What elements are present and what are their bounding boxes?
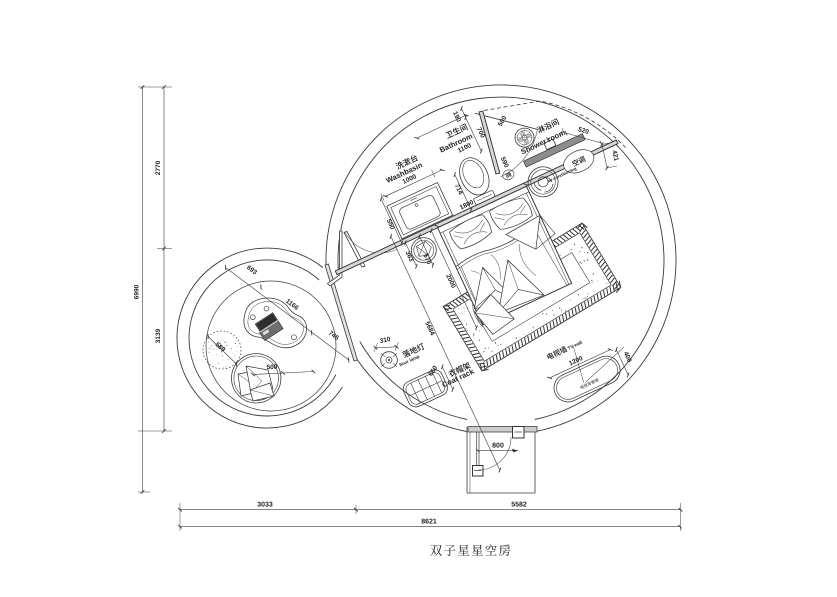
svg-text:2770: 2770 — [155, 160, 162, 175]
svg-text:6990: 6990 — [134, 284, 141, 299]
svg-text:5582: 5582 — [511, 502, 527, 509]
svg-text:8621: 8621 — [421, 519, 437, 526]
svg-text:500: 500 — [266, 364, 278, 372]
svg-text:800: 800 — [492, 443, 504, 450]
svg-text:3033: 3033 — [257, 502, 273, 509]
svg-text:3139: 3139 — [155, 328, 162, 343]
